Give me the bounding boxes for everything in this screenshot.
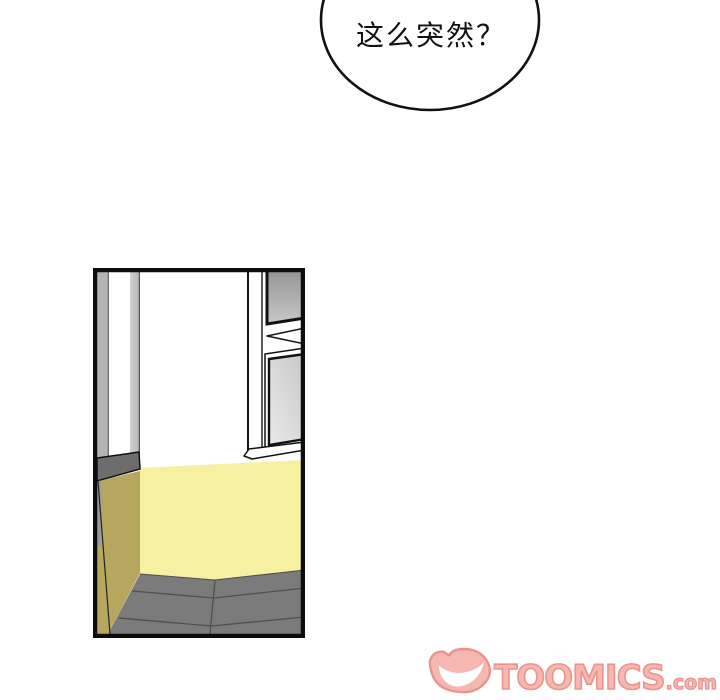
window-lower-pane-glass — [269, 354, 305, 445]
left-doorframe — [96, 270, 109, 458]
toomics-devil-icon — [427, 647, 493, 695]
yellow-wainscot — [140, 460, 305, 580]
watermark-brand-text: TOOMICS — [494, 661, 665, 695]
window-upper-pane — [267, 268, 305, 324]
watermark-logo: TOOMICS .com — [427, 647, 717, 695]
watermark-suffix-text: .com — [666, 674, 717, 693]
comic-panel — [93, 268, 305, 638]
doorframe-inner-strip — [130, 270, 140, 454]
speech-bubble — [318, 0, 544, 114]
speech-bubble-outline — [321, 0, 539, 110]
speech-bubble-text: 这么突然？ — [318, 20, 544, 52]
